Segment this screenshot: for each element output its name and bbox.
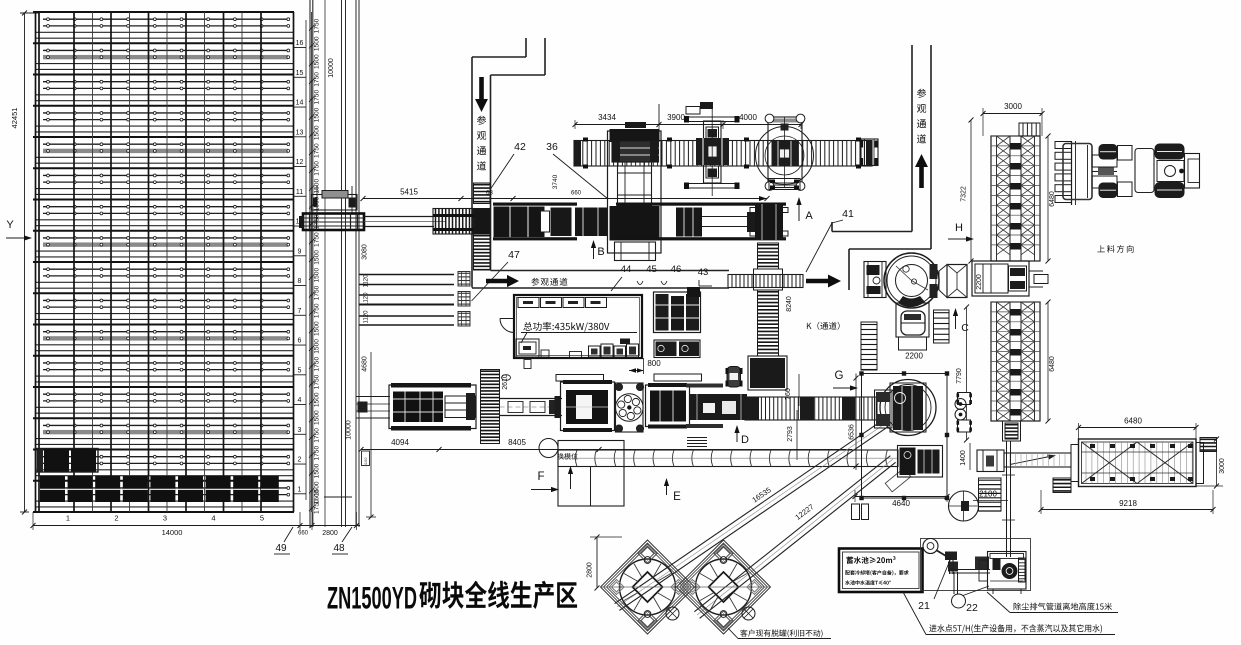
svg-text:1500: 1500	[314, 392, 321, 407]
svg-text:H: H	[955, 222, 963, 234]
svg-text:1750: 1750	[314, 446, 321, 461]
svg-text:ZN1500YD: ZN1500YD	[327, 580, 417, 616]
svg-text:22: 22	[966, 602, 978, 614]
svg-text:2793: 2793	[787, 426, 794, 442]
svg-text:49: 49	[275, 543, 287, 554]
svg-text:45: 45	[646, 264, 657, 275]
svg-text:11: 11	[296, 189, 303, 196]
svg-text:1500: 1500	[314, 268, 321, 283]
svg-text:5415: 5415	[400, 188, 418, 197]
svg-text:1750: 1750	[314, 232, 321, 247]
svg-text:C: C	[961, 322, 969, 334]
svg-text:48: 48	[333, 543, 345, 554]
svg-text:14: 14	[296, 100, 304, 107]
svg-text:16: 16	[296, 40, 304, 47]
svg-text:1500: 1500	[314, 250, 321, 265]
svg-text:6536: 6536	[849, 424, 856, 440]
svg-text:A: A	[805, 210, 813, 222]
svg-text:4094: 4094	[391, 438, 409, 447]
svg-text:1750: 1750	[314, 374, 321, 389]
svg-text:1750: 1750	[314, 72, 321, 87]
svg-text:2200: 2200	[976, 274, 983, 290]
svg-text:15: 15	[296, 70, 304, 77]
svg-text:3000: 3000	[1219, 458, 1226, 474]
svg-text:9218: 9218	[1119, 499, 1137, 508]
svg-text:1750: 1750	[314, 161, 321, 176]
svg-text:47: 47	[508, 249, 520, 261]
svg-text:7790: 7790	[956, 368, 963, 384]
svg-text:800: 800	[647, 359, 661, 368]
svg-text:7322: 7322	[961, 186, 968, 202]
svg-text:1750: 1750	[314, 285, 321, 300]
svg-text:660: 660	[571, 191, 582, 197]
svg-text:3: 3	[298, 427, 302, 434]
svg-text:13: 13	[296, 129, 304, 136]
svg-text:8: 8	[298, 278, 302, 285]
svg-text:4680: 4680	[362, 356, 369, 372]
svg-text:2800: 2800	[322, 530, 338, 537]
svg-text:2800: 2800	[587, 562, 594, 578]
svg-text:1750: 1750	[314, 18, 321, 33]
svg-text:1500: 1500	[314, 107, 321, 122]
svg-text:1750: 1750	[314, 303, 321, 318]
svg-text:D: D	[741, 434, 749, 446]
svg-text:42: 42	[514, 141, 526, 153]
svg-text:4640: 4640	[892, 499, 910, 508]
svg-text:1500: 1500	[314, 410, 321, 425]
svg-text:12: 12	[296, 159, 304, 166]
svg-text:G: G	[835, 370, 844, 382]
svg-text:2100: 2100	[979, 490, 997, 499]
svg-text:1120: 1120	[364, 292, 370, 306]
svg-text:Y: Y	[6, 219, 14, 231]
svg-text:1500: 1500	[314, 463, 321, 478]
svg-text:9: 9	[298, 248, 302, 255]
svg-text:1600: 1600	[314, 489, 321, 504]
svg-text:42451: 42451	[10, 108, 19, 129]
svg-text:3740: 3740	[552, 174, 559, 189]
svg-text:46: 46	[671, 264, 682, 275]
svg-text:10000: 10000	[346, 420, 353, 440]
svg-text:3000: 3000	[1004, 102, 1022, 111]
svg-text:10000: 10000	[328, 58, 335, 78]
svg-text:1500: 1500	[314, 36, 321, 51]
svg-text:660: 660	[298, 531, 309, 537]
svg-text:2200: 2200	[905, 352, 923, 361]
svg-text:3080: 3080	[362, 244, 369, 260]
svg-text:6480: 6480	[1049, 356, 1056, 372]
svg-text:3: 3	[163, 514, 167, 523]
svg-text:1: 1	[298, 486, 302, 493]
svg-text:68: 68	[486, 191, 493, 197]
svg-text:1500: 1500	[314, 321, 321, 336]
svg-text:8405: 8405	[508, 438, 526, 447]
svg-text:1: 1	[66, 514, 70, 523]
svg-text:3100: 3100	[363, 457, 368, 467]
svg-text:1500: 1500	[314, 339, 321, 354]
svg-text:1500: 1500	[314, 54, 321, 69]
svg-text:36: 36	[546, 141, 558, 153]
svg-text:3434: 3434	[598, 113, 616, 122]
svg-text:21: 21	[918, 600, 930, 612]
svg-text:E: E	[673, 491, 681, 503]
svg-text:14000: 14000	[162, 528, 183, 537]
svg-text:5: 5	[260, 514, 264, 523]
svg-text:43: 43	[698, 267, 709, 278]
svg-text:1120: 1120	[364, 274, 370, 288]
svg-text:41: 41	[842, 208, 854, 220]
svg-text:F: F	[537, 471, 544, 483]
svg-text:5: 5	[298, 367, 302, 374]
svg-text:7: 7	[298, 308, 302, 315]
svg-text:3900: 3900	[667, 113, 685, 122]
svg-text:44: 44	[621, 264, 632, 275]
svg-text:6480: 6480	[1124, 417, 1142, 426]
svg-text:2: 2	[298, 457, 302, 464]
svg-text:2: 2	[114, 514, 118, 523]
svg-text:4000: 4000	[739, 113, 757, 122]
svg-text:1750: 1750	[314, 143, 321, 158]
svg-text:8240: 8240	[786, 296, 793, 312]
svg-text:6: 6	[298, 338, 302, 345]
svg-text:4: 4	[298, 397, 302, 404]
svg-text:4: 4	[211, 514, 215, 523]
svg-text:1750: 1750	[314, 357, 321, 372]
svg-text:1750: 1750	[314, 428, 321, 443]
svg-text:2610: 2610	[502, 374, 509, 390]
svg-text:1400: 1400	[960, 450, 967, 466]
svg-text:B: B	[597, 246, 604, 258]
svg-text:1750: 1750	[314, 90, 321, 105]
svg-text:1500: 1500	[314, 125, 321, 140]
